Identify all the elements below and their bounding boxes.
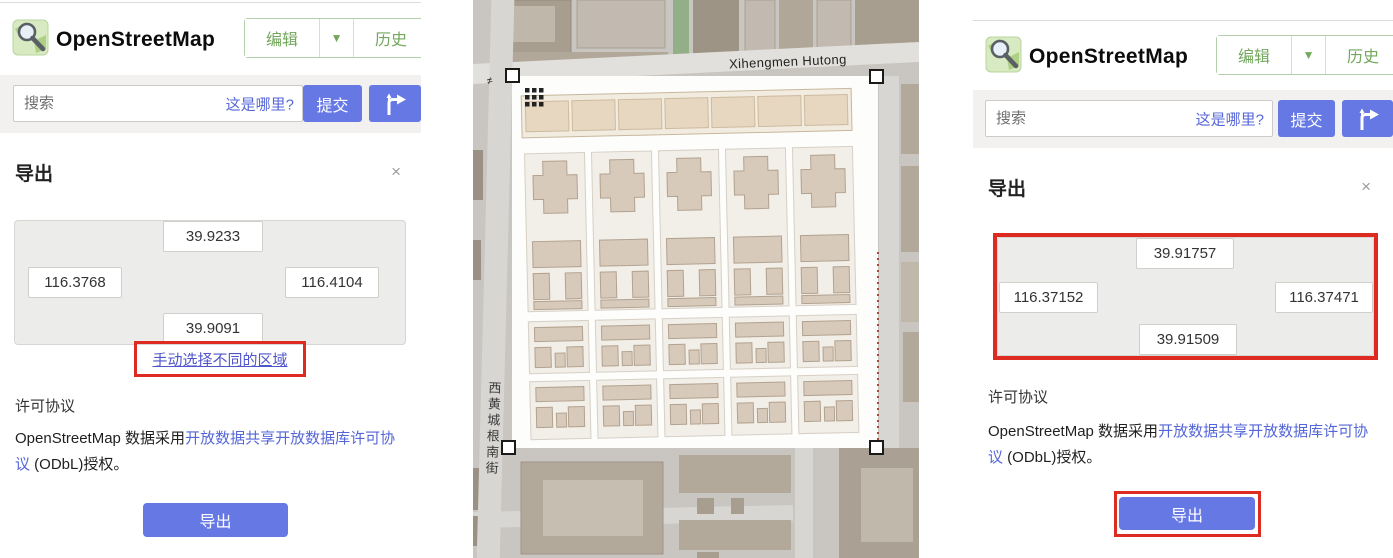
brand-title[interactable]: OpenStreetMap — [1029, 45, 1188, 69]
export-panel-title: 导出 — [15, 159, 53, 186]
directions-button[interactable] — [1342, 100, 1393, 137]
brand-title[interactable]: OpenStreetMap — [56, 28, 215, 52]
export-button[interactable]: 导出 — [1119, 497, 1255, 530]
bbox-west-input[interactable] — [999, 282, 1098, 313]
selection-handle-nw[interactable] — [506, 69, 519, 82]
export-button[interactable]: 导出 — [143, 503, 288, 537]
top-divider — [973, 20, 1393, 21]
bbox-south-input[interactable] — [1139, 324, 1237, 355]
right-osm-panel: OpenStreetMap 编辑 ▼ 历史 这是哪里? 提交 导出 × — [973, 0, 1393, 558]
selection-handle-ne[interactable] — [870, 70, 883, 83]
search-submit-button[interactable]: 提交 — [1278, 100, 1335, 137]
history-button[interactable]: 历史 — [354, 19, 421, 57]
export-panel-title: 导出 — [988, 174, 1026, 201]
license-text-prefix: OpenStreetMap 数据采用 — [988, 423, 1158, 440]
street-label-xihuangchenggen-south: 西黄城根南街 — [481, 381, 503, 478]
where-is-this-link[interactable]: 这是哪里? — [1196, 108, 1264, 129]
license-text-suffix: (ODbL)授权。 — [30, 456, 128, 473]
bbox-north-input[interactable] — [163, 221, 263, 252]
license-heading: 许可协议 — [988, 386, 1048, 407]
bbox-east-input[interactable] — [1275, 282, 1373, 313]
highlight-box-export-button: 导出 — [1114, 491, 1261, 537]
bbox-coordinates-panel — [14, 220, 406, 345]
search-bar-row: 这是哪里? 提交 — [0, 75, 421, 133]
directions-button[interactable] — [369, 85, 421, 122]
directions-icon — [1355, 107, 1381, 131]
nav-button-group: 编辑 ▼ 历史 — [1216, 35, 1393, 75]
selection-handle-sw[interactable] — [502, 441, 515, 454]
top-divider — [0, 2, 421, 3]
close-icon[interactable]: × — [1361, 178, 1371, 195]
license-text-prefix: OpenStreetMap 数据采用 — [15, 430, 185, 447]
edit-button[interactable]: 编辑 — [245, 19, 320, 57]
selection-handle-se[interactable] — [870, 441, 883, 454]
select-different-area-link[interactable]: 手动选择不同的区域 — [152, 349, 287, 370]
close-icon[interactable]: × — [391, 163, 401, 180]
license-heading: 许可协议 — [15, 395, 75, 416]
highlight-box-select-area: 手动选择不同的区域 — [134, 341, 306, 377]
openstreetmap-logo[interactable] — [985, 36, 1022, 73]
directions-icon — [382, 92, 408, 116]
history-button[interactable]: 历史 — [1326, 36, 1393, 74]
search-box: 这是哪里? — [13, 85, 303, 122]
bbox-coordinates-panel — [997, 237, 1374, 356]
screenshot-canvas: OpenStreetMap 编辑 ▼ 历史 这是哪里? 提交 导出 × — [0, 0, 1393, 558]
map-canvas[interactable]: Xihengmen Hutong 西黄城根南街 ≠ — [473, 0, 919, 558]
license-paragraph: OpenStreetMap 数据采用开放数据共享开放数据库许可协议 (ODbL)… — [15, 426, 407, 478]
bbox-east-input[interactable] — [285, 267, 379, 298]
bbox-south-input[interactable] — [163, 313, 263, 344]
drag-grid-icon[interactable] — [525, 88, 544, 107]
license-text-suffix: (ODbL)授权。 — [1003, 449, 1101, 466]
bbox-west-input[interactable] — [28, 267, 122, 298]
highlight-box-bbox — [993, 233, 1378, 360]
search-bar-row: 这是哪里? 提交 — [973, 90, 1393, 148]
openstreetmap-logo[interactable] — [12, 19, 49, 56]
search-box: 这是哪里? — [985, 100, 1273, 137]
search-submit-button[interactable]: 提交 — [303, 85, 362, 122]
license-paragraph: OpenStreetMap 数据采用开放数据共享开放数据库许可协议 (ODbL)… — [988, 419, 1380, 471]
edit-button[interactable]: 编辑 — [1217, 36, 1292, 74]
where-is-this-link[interactable]: 这是哪里? — [226, 93, 294, 114]
bbox-north-input[interactable] — [1136, 238, 1234, 269]
edit-dropdown-caret-icon[interactable]: ▼ — [1292, 36, 1326, 74]
left-osm-panel: OpenStreetMap 编辑 ▼ 历史 这是哪里? 提交 导出 × — [0, 0, 421, 558]
nav-button-group: 编辑 ▼ 历史 — [244, 18, 421, 58]
edit-dropdown-caret-icon[interactable]: ▼ — [320, 19, 354, 57]
map-render — [473, 0, 919, 558]
